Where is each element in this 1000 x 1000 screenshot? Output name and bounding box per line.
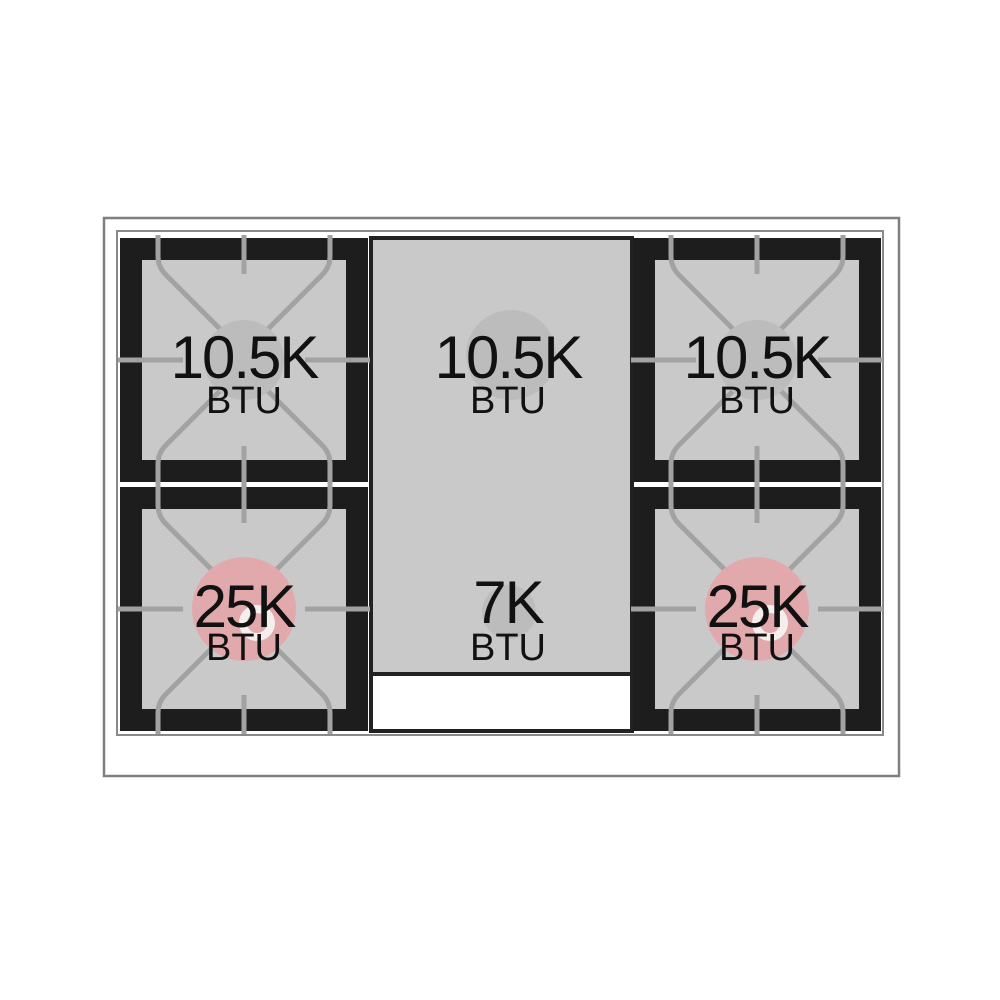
btu-unit-top-center: BTU [470, 380, 546, 422]
btu-unit-bottom-right: BTU [719, 627, 795, 669]
cooktop-diagram: 10.5K BTU 10.5K BTU 10.5K BTU 25K BTU 7K… [0, 0, 1000, 1000]
lower-center-panel [371, 674, 632, 731]
btu-unit-bottom-left: BTU [206, 627, 282, 669]
btu-unit-bottom-center: BTU [470, 627, 546, 669]
btu-unit-top-left: BTU [206, 380, 282, 422]
btu-value-bottom-center: 7K [473, 569, 544, 636]
btu-unit-top-right: BTU [719, 380, 795, 422]
cooktop-svg: 10.5K BTU 10.5K BTU 10.5K BTU 25K BTU 7K… [0, 0, 1000, 1000]
